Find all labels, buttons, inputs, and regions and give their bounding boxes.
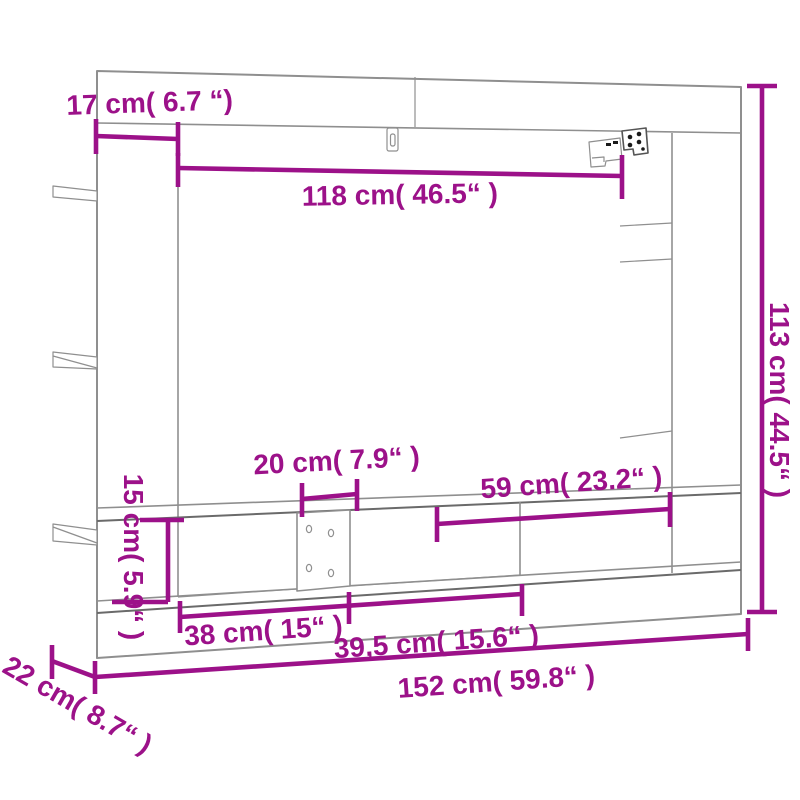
dim-label-total-height: 113 cm( 44.5“ )	[764, 302, 795, 498]
bracket-clip-mark	[613, 141, 618, 144]
bracket-screw-dot	[637, 132, 642, 137]
dim-label-top-depth: 17 cm( 6.7 “)	[66, 84, 234, 121]
floor-back-edge-left	[178, 589, 297, 597]
right-column-shelf-edge	[620, 431, 672, 438]
dimension-total-depth: 22 cm( 8.7“ )	[0, 645, 158, 760]
cabinet-drawing	[53, 71, 741, 658]
bracket-clip-mark	[606, 143, 611, 146]
center-support-panel	[297, 510, 350, 591]
dim-line	[437, 509, 670, 524]
dimension-tv-opening-width: 118 cm( 46.5“ )	[178, 153, 622, 212]
dimension-lower-compartment-height: 15 cm( 5.9“ )	[112, 474, 184, 641]
keyhole-hanger	[387, 128, 398, 151]
dim-line	[178, 168, 622, 176]
dimension-shelf-gap-width: 20 cm( 7.9“ )	[253, 441, 421, 517]
floor-back-edge-middle	[350, 575, 520, 586]
dim-label-total-depth: 22 cm( 8.7“ )	[0, 650, 158, 760]
dim-label-lower-compartment-height: 15 cm( 5.9“ )	[118, 474, 149, 641]
wall-bracket	[589, 128, 648, 167]
dim-line	[96, 136, 178, 139]
dimension-top-depth: 17 cm( 6.7 “)	[66, 84, 234, 156]
tv-cabinet-dimension-drawing: 17 cm( 6.7 “) 118 cm( 46.5“ ) 113 cm( 44…	[0, 0, 800, 800]
keyhole-hanger-plate	[387, 128, 398, 151]
back-panel-outline	[97, 71, 741, 658]
dimensions-layer: 17 cm( 6.7 “) 118 cm( 46.5“ ) 113 cm( 44…	[0, 84, 795, 760]
bracket-screw-dot	[628, 135, 633, 140]
dim-label-tv-opening-width: 118 cm( 46.5“ )	[302, 177, 499, 211]
right-column-shelf-edge	[620, 259, 672, 262]
diagram-canvas: 17 cm( 6.7 “) 118 cm( 46.5“ ) 113 cm( 44…	[0, 0, 800, 800]
dim-label-total-width: 152 cm( 59.8“ )	[397, 659, 596, 704]
floor-front-edge	[97, 570, 741, 613]
right-column-shelf-edge	[620, 223, 672, 226]
left-side-shelf-top	[53, 186, 97, 201]
bracket-screw-dot	[641, 147, 645, 151]
bracket-screw-dot	[637, 140, 642, 145]
bracket-screw-dot	[628, 143, 633, 148]
dim-label-shelf-gap-width: 20 cm( 7.9“ )	[253, 441, 421, 481]
wall-bracket-right-plate	[622, 128, 648, 155]
dimension-total-height: 113 cm( 44.5“ )	[747, 86, 795, 612]
